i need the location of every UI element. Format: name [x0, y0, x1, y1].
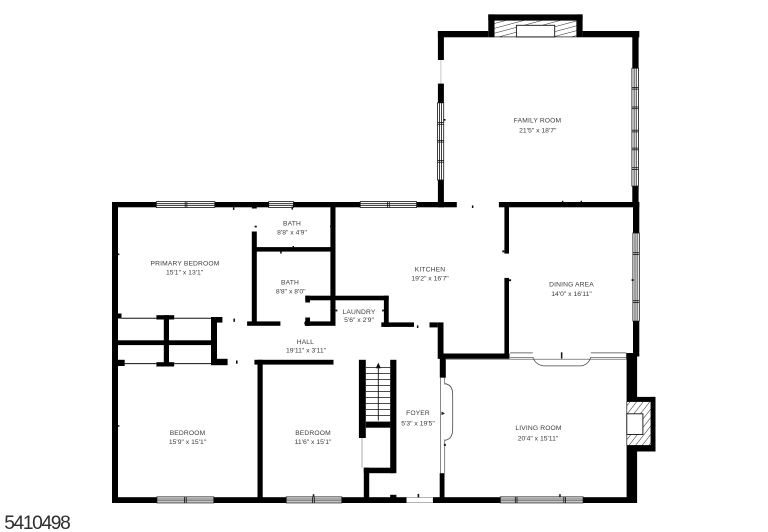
svg-text:FAMILY ROOM: FAMILY ROOM — [514, 118, 562, 125]
svg-text:BATH: BATH — [283, 221, 301, 228]
svg-text:14'0" x 16'11": 14'0" x 16'11" — [551, 291, 592, 298]
svg-text:BEDROOM: BEDROOM — [295, 430, 331, 437]
svg-text:15'1" x 13'1": 15'1" x 13'1" — [166, 270, 204, 277]
svg-text:BEDROOM: BEDROOM — [170, 430, 206, 437]
svg-text:15'9" x 15'1": 15'9" x 15'1" — [169, 439, 207, 446]
svg-text:PRIMARY BEDROOM: PRIMARY BEDROOM — [151, 261, 220, 268]
svg-text:5'3" x 19'5": 5'3" x 19'5" — [401, 421, 435, 428]
svg-text:LIVING ROOM: LIVING ROOM — [515, 425, 562, 432]
svg-text:11'6" x 15'1": 11'6" x 15'1" — [295, 439, 332, 446]
svg-text:20'4" x 15'11": 20'4" x 15'11" — [518, 436, 559, 443]
svg-text:LAUNDRY: LAUNDRY — [343, 309, 376, 316]
svg-text:19'2" x 16'7": 19'2" x 16'7" — [411, 276, 449, 283]
svg-text:8'8" x 4'9": 8'8" x 4'9" — [277, 229, 307, 236]
svg-text:BATH: BATH — [281, 280, 299, 287]
svg-text:KITCHEN: KITCHEN — [415, 267, 445, 274]
svg-text:5410498: 5410498 — [4, 513, 70, 532]
svg-text:FOYER: FOYER — [406, 410, 430, 417]
svg-text:DINING AREA: DINING AREA — [549, 282, 594, 289]
svg-text:8'8" x 8'0": 8'8" x 8'0" — [276, 289, 306, 296]
svg-text:21'5" x 18'7": 21'5" x 18'7" — [519, 128, 557, 135]
svg-text:19'11" x 3'11": 19'11" x 3'11" — [286, 348, 327, 355]
svg-text:5'6" x 2'9": 5'6" x 2'9" — [344, 317, 374, 324]
svg-text:HALL: HALL — [297, 339, 314, 346]
